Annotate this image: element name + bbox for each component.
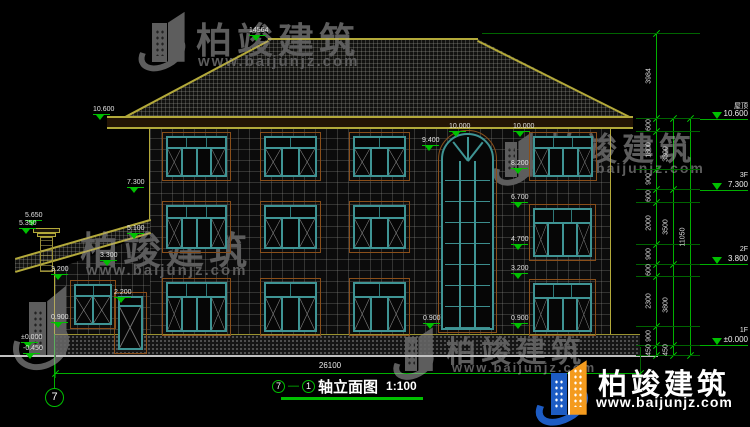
window-pane: [168, 219, 183, 247]
window-pane: [578, 224, 590, 256]
dim-segment-value: 3800: [663, 297, 670, 313]
dim-segment-value: 900: [646, 330, 653, 342]
title-scale: 1:100: [386, 379, 417, 393]
window-pane: [389, 298, 404, 330]
level-symbol-icon: [51, 274, 68, 280]
window-frame: [264, 205, 317, 249]
level-symbol-icon: [114, 297, 131, 303]
elevation-marker: 0.900: [511, 315, 529, 329]
axis-bubble-7: 7: [45, 388, 64, 407]
elevation-marker: 0.900: [423, 315, 441, 329]
window-pane: [300, 298, 315, 330]
dim-extension-line: [636, 276, 700, 277]
elevation-marker: 3.200: [51, 266, 69, 280]
window-body: [355, 219, 404, 247]
title-separator: —: [288, 380, 299, 392]
level-line: [700, 190, 748, 191]
window: [70, 280, 116, 329]
transom-pane: [76, 286, 94, 295]
window-pane: [564, 149, 579, 175]
transom-pane: [355, 284, 380, 296]
dim-segment-value: 450: [663, 344, 670, 356]
dim-segment-value: 600: [646, 119, 653, 131]
window-frame: [353, 282, 406, 332]
title-axis-start: 7: [272, 380, 285, 393]
window-transom: [355, 207, 404, 219]
window-body: [266, 149, 315, 175]
dim-extension-line: [636, 244, 700, 245]
window-pane: [212, 298, 225, 330]
transom-pane: [554, 210, 573, 222]
window: [162, 201, 231, 253]
level-value: 7.300: [696, 180, 748, 189]
window-pane: [535, 299, 549, 331]
window-frame: [74, 284, 112, 325]
dim-segment-value: 900: [646, 248, 653, 260]
elevation-marker: 0.900: [51, 314, 69, 328]
window-transom: [535, 210, 590, 224]
elevation-marker: 4.700: [511, 236, 529, 250]
level-symbol-icon: [423, 323, 440, 329]
dim-segment-value: 2300: [646, 293, 653, 309]
brand-logo-icon: [137, 8, 193, 72]
window-pane: [372, 219, 389, 247]
window-frame: [533, 136, 593, 177]
window-pane: [266, 149, 283, 175]
dim-extension-line: [636, 202, 700, 203]
transom-pane: [535, 210, 554, 222]
transom-pane: [380, 207, 404, 217]
dim-segment-value: 1800: [646, 142, 653, 158]
dim-extension-line: [636, 326, 700, 327]
window-transom: [535, 285, 590, 299]
window: [162, 278, 231, 336]
transom-pane: [207, 138, 225, 147]
window: [529, 204, 596, 261]
elevation-marker: 7.300: [127, 179, 145, 193]
window-pane: [578, 299, 590, 331]
level-symbol-icon: [511, 244, 528, 250]
window-pane: [389, 219, 404, 247]
title-block: 7 — 1 轴立面图 1:100: [272, 376, 417, 396]
elevation-marker: -0.450: [23, 345, 43, 359]
transom-pane: [207, 284, 225, 296]
level-symbol-icon: [100, 260, 117, 266]
window-body: [266, 219, 315, 247]
level-symbol-icon: [511, 323, 528, 329]
window-pane: [283, 298, 300, 330]
window-pane: [198, 219, 213, 247]
window-body: [168, 298, 225, 330]
window-pane: [355, 298, 372, 330]
dim-segment-value: 11050: [680, 227, 687, 246]
watermark-url: www.baijunjz.com: [452, 360, 596, 375]
window-transom: [76, 286, 110, 297]
level-line: [700, 264, 748, 265]
window-transom: [168, 138, 225, 149]
elevation-marker: 5.100: [127, 225, 145, 239]
elevation-marker: 10.000: [449, 123, 470, 137]
window-pane: [300, 149, 315, 175]
window-pane: [183, 298, 198, 330]
window-body: [76, 297, 110, 323]
transom-pane: [187, 138, 206, 147]
dim-segment-value: 3300: [663, 146, 670, 162]
window-pane: [550, 149, 565, 175]
title-text: 轴立面图: [318, 376, 378, 397]
transom-pane: [168, 284, 187, 296]
transom-pane: [572, 285, 590, 297]
arch-spoke: [467, 142, 483, 162]
window-body: [168, 219, 225, 247]
transom-pane: [168, 207, 187, 217]
window-pane: [564, 299, 578, 331]
transom-pane: [94, 286, 111, 295]
level-label: 3F: [696, 172, 748, 179]
transom-pane: [535, 138, 554, 147]
window-pane: [212, 219, 225, 247]
elevation-marker: 2.200: [114, 289, 132, 303]
title-underline: [281, 397, 423, 400]
elevation-marker: 14564: [249, 27, 268, 41]
window: [349, 201, 410, 253]
transom-pane: [266, 284, 291, 296]
elevation-marker: 6.700: [511, 194, 529, 208]
window-pane: [283, 219, 300, 247]
watermark-url: www.baijunjz.com: [198, 53, 359, 70]
window-pane: [212, 149, 225, 175]
transom-pane: [535, 285, 554, 297]
dim-segment-value: 3984: [646, 68, 653, 84]
dim-segment-value: 900: [646, 173, 653, 185]
level-symbol-icon: [511, 168, 528, 174]
window-pane: [300, 219, 315, 247]
window-transom: [266, 138, 315, 149]
transom-pane: [380, 284, 404, 296]
window: [260, 201, 321, 253]
dim-segment-value: 600: [646, 190, 653, 202]
window-frame: [166, 136, 227, 177]
elevation-marker: 10.600: [93, 106, 114, 120]
transom-pane: [355, 207, 380, 217]
window-transom: [266, 284, 315, 298]
level-symbol-icon: [511, 273, 528, 279]
door-leaf: [120, 307, 141, 348]
arched-window: [441, 133, 494, 330]
elevation-marker: 5.350: [19, 220, 37, 234]
window-frame: [533, 283, 592, 332]
window-pane: [94, 297, 110, 323]
level-symbol-icon: [127, 233, 144, 239]
arch-mullion: [459, 161, 461, 328]
level-symbol-icon: [127, 187, 144, 193]
window-pane: [549, 224, 563, 256]
window: [349, 278, 410, 336]
window-pane: [535, 149, 550, 175]
window-frame: [264, 136, 317, 177]
window-transom: [168, 207, 225, 219]
window-pane: [283, 149, 300, 175]
cad-elevation-screenshot: 26100 7 7 — 1 轴立面图 1:100 柏竣建筑 www.baijun…: [0, 0, 750, 427]
level-symbol-icon: [249, 35, 266, 41]
window-frame: [264, 282, 317, 332]
window: [260, 278, 321, 336]
window-transom: [355, 284, 404, 298]
window-transom: [355, 138, 404, 149]
window-body: [535, 224, 590, 256]
level-line: [700, 345, 748, 346]
window-pane: [183, 149, 198, 175]
window-frame: [353, 205, 406, 249]
window-body: [355, 149, 404, 175]
window: [162, 132, 231, 181]
window-transom: [535, 138, 591, 149]
level-symbol-icon: [93, 114, 110, 120]
transom-pane: [187, 207, 206, 217]
dim-extension-line: [482, 33, 700, 34]
level-symbol-icon: [51, 322, 68, 328]
transom-pane: [266, 207, 291, 217]
transom-pane: [291, 207, 315, 217]
level-label: 2F: [696, 246, 748, 253]
elevation-marker: 10.000: [513, 123, 534, 137]
window-body: [266, 298, 315, 330]
transom-pane: [355, 138, 380, 147]
window-pane: [535, 224, 549, 256]
arch-mullion: [474, 161, 476, 328]
title-axis-end: 1: [302, 380, 315, 393]
arch-spoke: [452, 142, 468, 162]
window-pane: [198, 149, 213, 175]
window-pane: [372, 149, 389, 175]
window: [529, 279, 596, 336]
elevation-marker: 9.400: [422, 137, 440, 151]
elevation-marker: 3.200: [511, 265, 529, 279]
window-body: [535, 299, 590, 331]
window: [529, 132, 597, 181]
door-body: [120, 307, 141, 348]
dim-segment-value: 600: [646, 264, 653, 276]
window-pane: [168, 149, 183, 175]
transom-pane: [572, 210, 590, 222]
transom-pane: [291, 284, 315, 296]
transom-pane: [554, 138, 573, 147]
elevation-marker: 8.200: [511, 160, 529, 174]
total-width-dimension: 26100: [305, 361, 355, 370]
dim-segment-value: 450: [646, 344, 653, 356]
transom-pane: [187, 284, 206, 296]
window: [349, 132, 410, 181]
transom-pane: [554, 285, 573, 297]
dim-segment-value: 2000: [646, 215, 653, 231]
window-pane: [564, 224, 578, 256]
window-pane: [198, 298, 213, 330]
level-symbol-icon: [19, 228, 36, 234]
level-value: ±0.000: [696, 335, 748, 344]
window-pane: [579, 149, 592, 175]
arch-rungs: [445, 175, 490, 328]
window-pane: [355, 149, 372, 175]
window-pane: [549, 299, 563, 331]
transom-pane: [291, 138, 315, 147]
dim-extension-line: [636, 131, 700, 132]
window-body: [535, 149, 591, 175]
window-pane: [168, 298, 183, 330]
window-frame: [353, 136, 406, 177]
transom-pane: [380, 138, 404, 147]
window-body: [355, 298, 404, 330]
window-pane: [266, 298, 283, 330]
level-symbol-icon: [449, 131, 466, 137]
window-frame: [533, 208, 592, 257]
window-frame: [166, 205, 227, 249]
window-pane: [183, 219, 198, 247]
window-pane: [372, 298, 389, 330]
level-line: [700, 119, 748, 120]
window-pane: [389, 149, 404, 175]
level-symbol-icon: [422, 145, 439, 151]
transom-pane: [266, 138, 291, 147]
level-label: 1F: [696, 327, 748, 334]
transom-pane: [573, 138, 591, 147]
window-body: [168, 149, 225, 175]
level-symbol-icon: [513, 131, 530, 137]
window-pane: [355, 219, 372, 247]
transom-pane: [168, 138, 187, 147]
level-value: 10.600: [696, 109, 748, 118]
transom-pane: [207, 207, 225, 217]
window: [260, 132, 321, 181]
window-transom: [168, 284, 225, 298]
elevation-marker: 3.300: [100, 252, 118, 266]
level-symbol-icon: [23, 353, 40, 359]
window-transom: [266, 207, 315, 219]
level-symbol-icon: [511, 202, 528, 208]
window-pane: [266, 219, 283, 247]
dim-segment-value: 3500: [663, 219, 670, 235]
window-frame: [166, 282, 227, 332]
level-value: 3.800: [696, 254, 748, 263]
dim-extension-line: [636, 169, 700, 170]
window-pane: [76, 297, 94, 323]
